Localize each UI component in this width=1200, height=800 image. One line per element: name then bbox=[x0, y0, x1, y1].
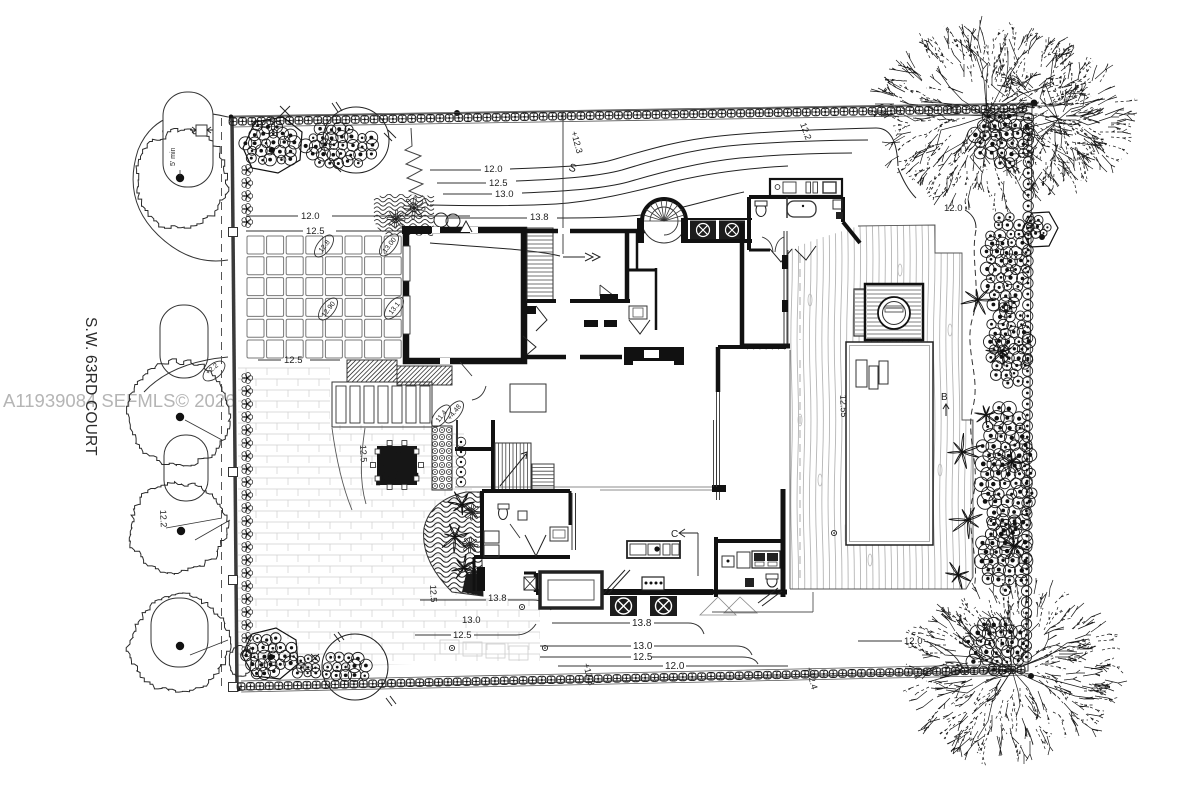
svg-text:C: C bbox=[671, 529, 678, 540]
svg-text:12.0: 12.0 bbox=[665, 661, 685, 672]
svg-text:12.5: 12.5 bbox=[489, 178, 508, 189]
svg-text:5' min: 5' min bbox=[170, 147, 177, 166]
svg-text:12.5: 12.5 bbox=[633, 652, 653, 663]
svg-text:13.8: 13.8 bbox=[632, 618, 652, 629]
svg-text:12.0: 12.0 bbox=[944, 203, 963, 214]
svg-text:A11939084 SEFMLS© 2026: A11939084 SEFMLS© 2026 bbox=[3, 390, 235, 411]
svg-text:13.8: 13.8 bbox=[488, 593, 507, 604]
svg-text:12.5: 12.5 bbox=[428, 585, 439, 603]
svg-text:12.5: 12.5 bbox=[306, 226, 325, 237]
svg-text:B: B bbox=[941, 392, 948, 403]
svg-text:12.5: 12.5 bbox=[453, 630, 472, 641]
svg-text:13.0: 13.0 bbox=[495, 189, 514, 200]
svg-text:12.0: 12.0 bbox=[484, 164, 503, 175]
svg-text:12.2: 12.2 bbox=[158, 510, 169, 528]
svg-text:S.W. 63RD COURT: S.W. 63RD COURT bbox=[82, 317, 99, 456]
svg-text:13.8: 13.8 bbox=[530, 212, 549, 223]
svg-text:13.0: 13.0 bbox=[462, 615, 481, 626]
svg-text:12.0: 12.0 bbox=[301, 211, 320, 222]
svg-text:13.0: 13.0 bbox=[633, 641, 653, 652]
svg-text:12.5: 12.5 bbox=[284, 355, 303, 366]
svg-text:12.5: 12.5 bbox=[358, 445, 369, 463]
